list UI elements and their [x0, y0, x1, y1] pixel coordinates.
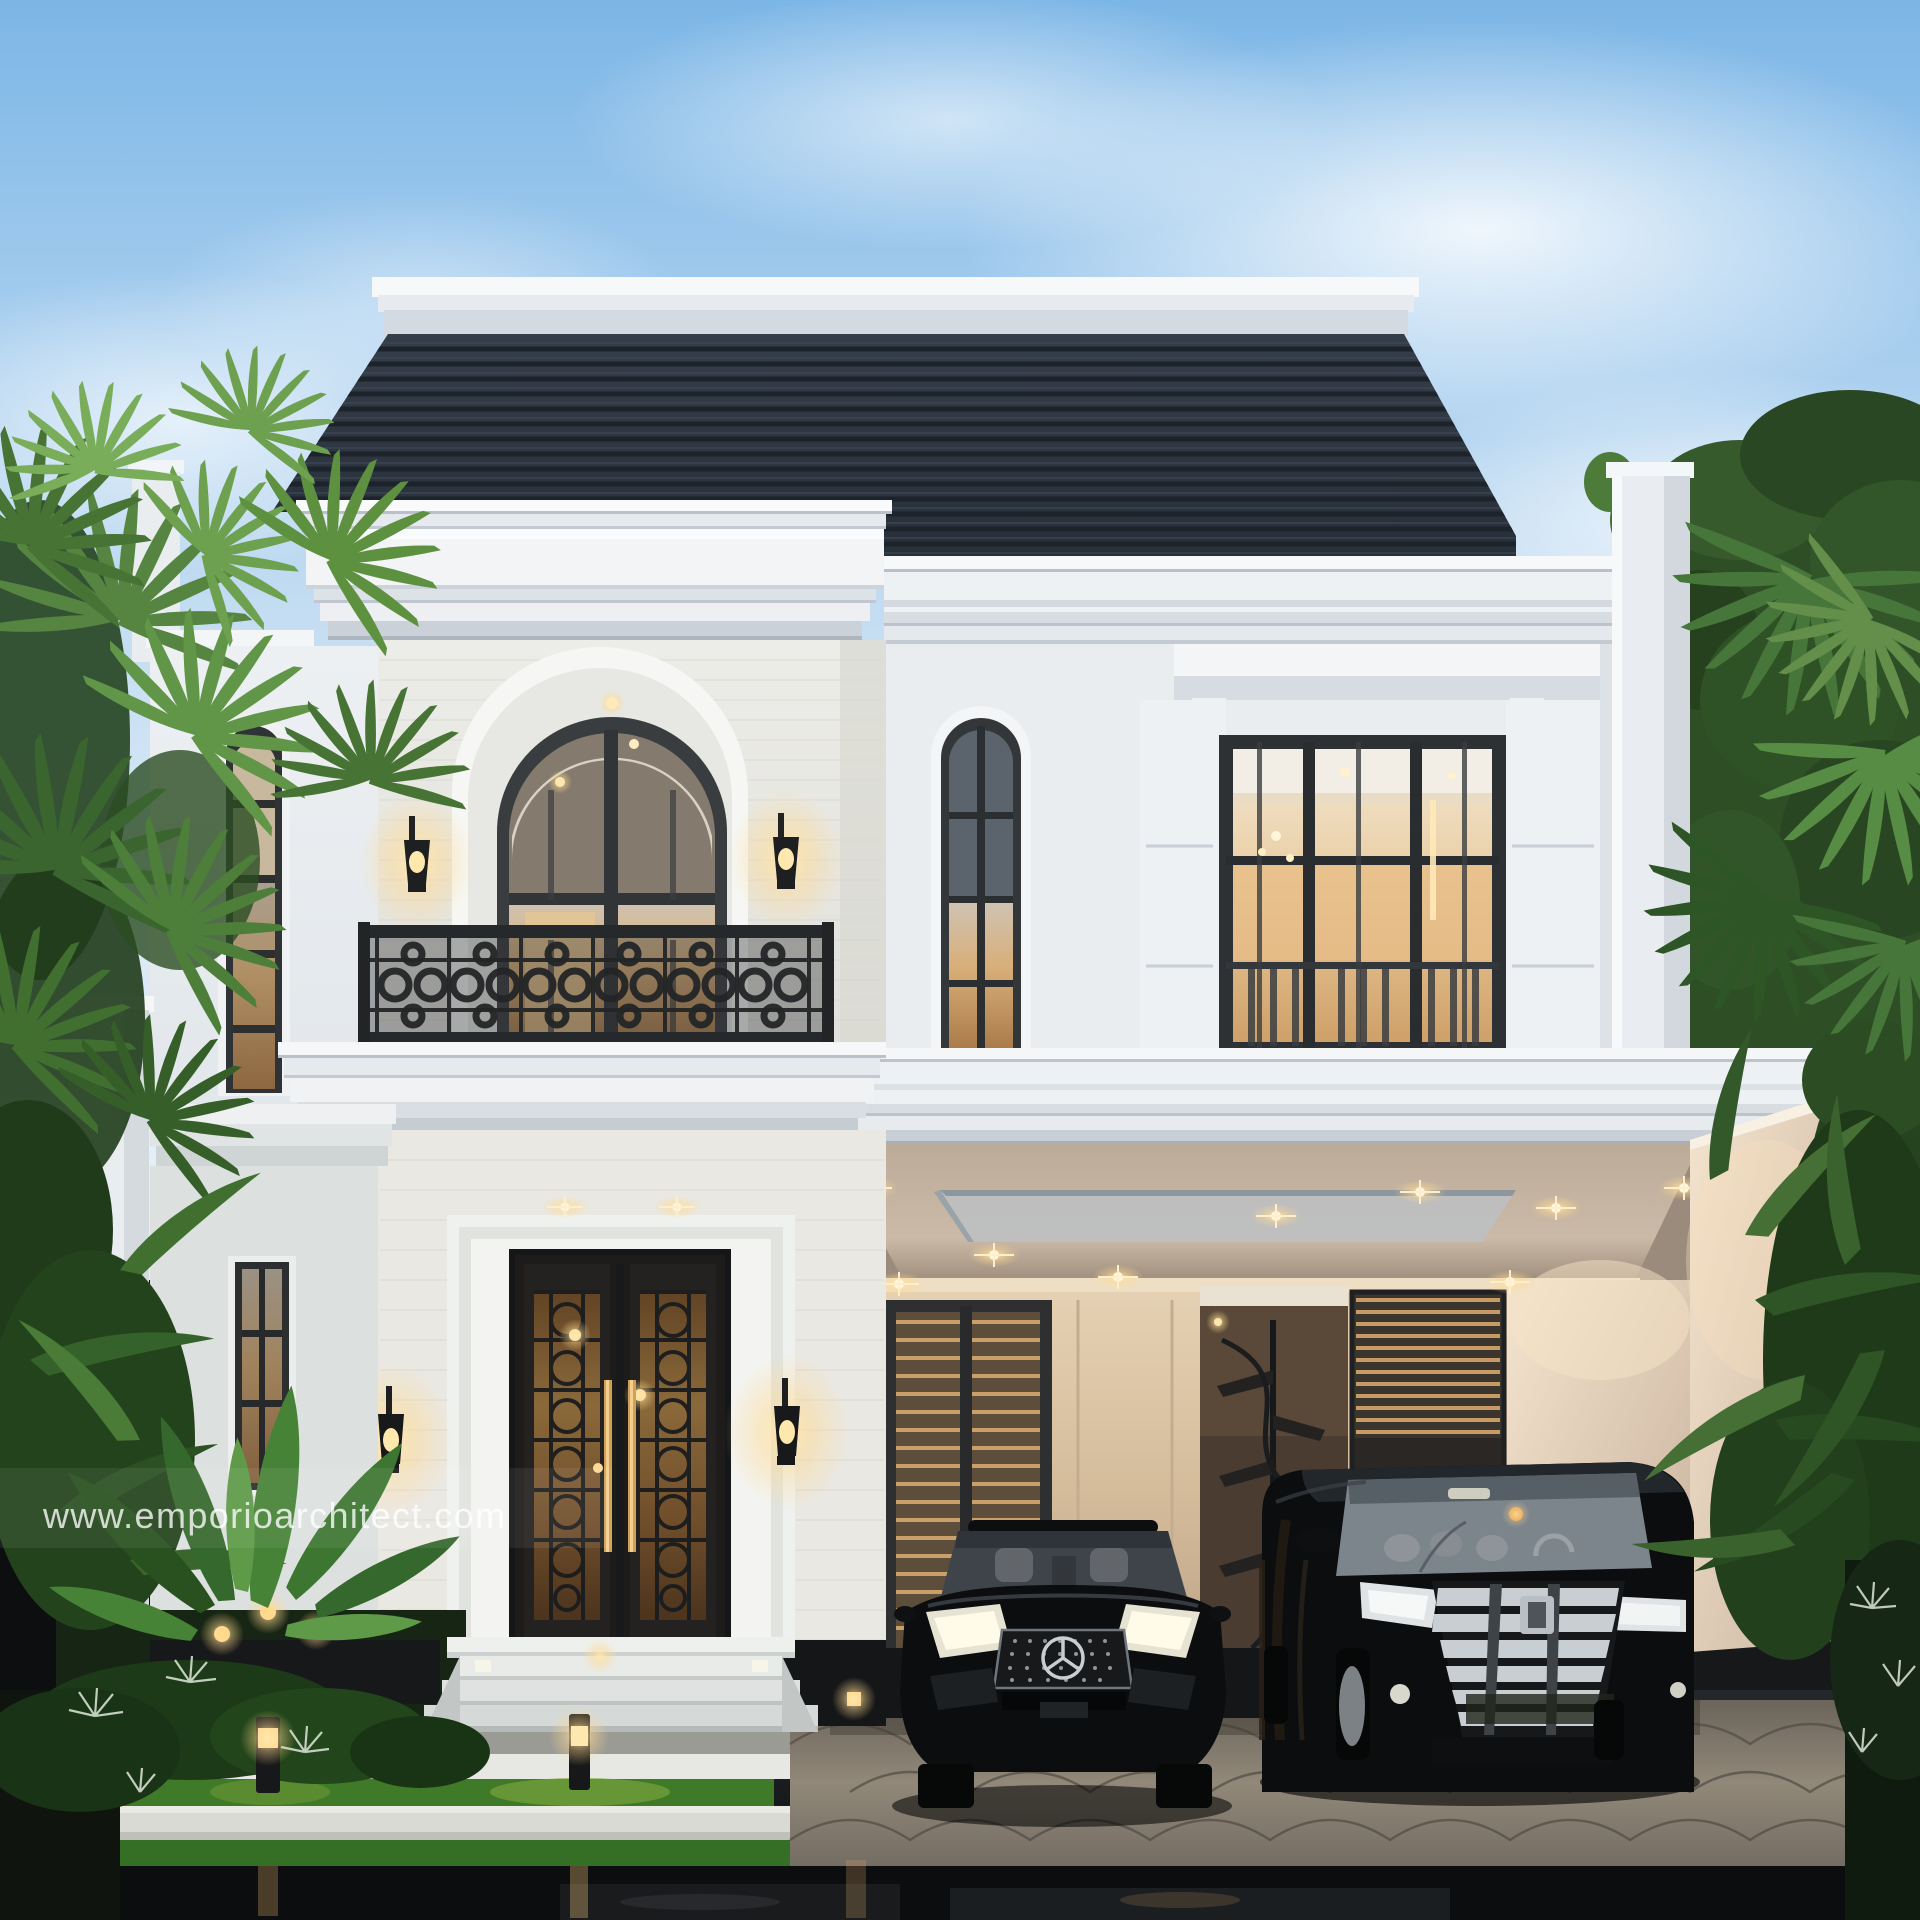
svg-text:www.emporioarchitect.com: www.emporioarchitect.com: [42, 1495, 505, 1536]
